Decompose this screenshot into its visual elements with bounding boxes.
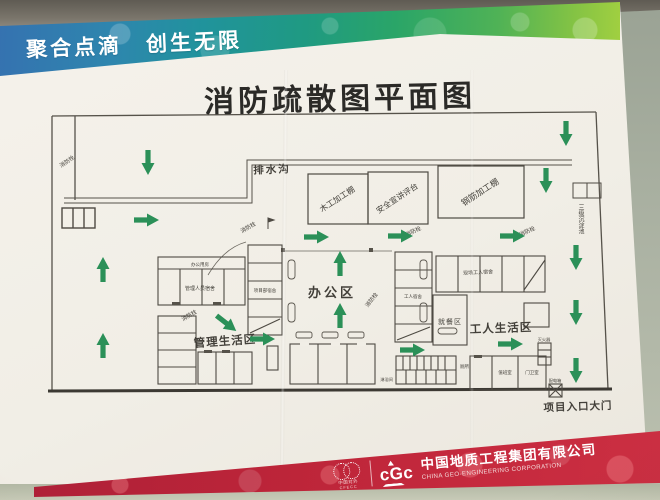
evacuation-arrow	[142, 150, 155, 175]
evacuation-arrow	[97, 257, 110, 282]
toilet-label: 厕所	[460, 363, 469, 370]
duty-room-label: 值班室	[498, 369, 512, 376]
evacuation-arrow	[304, 231, 329, 244]
substation-box	[62, 208, 95, 228]
evacuation-arrow	[400, 344, 425, 357]
evacuation-arrow	[570, 245, 583, 270]
hydrant-symbol	[268, 218, 274, 229]
door-marks	[172, 302, 482, 358]
mgmt-area-label: 管理生活区	[193, 332, 256, 350]
partner-logo-icon: 中国对外 CFECC	[331, 459, 364, 492]
hydrant-labels: 消防栓消防栓消防栓消防栓消防栓消防栓	[58, 153, 537, 323]
wood-shed-label: 木工加工棚	[318, 184, 357, 214]
evacuation-arrow	[97, 333, 110, 358]
sediment-tank	[573, 183, 601, 198]
hydrant-label: 消防栓	[363, 290, 380, 308]
evacuation-arrow	[540, 168, 553, 193]
power-box-label: 配电箱	[549, 377, 562, 384]
proj-dorm-label: 项目部宿舍	[254, 287, 277, 294]
office-area-label: 办公区	[308, 285, 356, 300]
site-plan: 排水沟 木工加工棚 安全宣讲评台 钢筋加工棚 三级沉淀池	[0, 0, 660, 500]
site-boundary	[52, 112, 608, 392]
gate-label: 项目入口大门	[543, 399, 612, 414]
evacuation-arrow	[498, 338, 523, 351]
evacuation-arrow	[570, 300, 583, 325]
extinguisher-label: 灭火器	[538, 337, 551, 343]
evacuation-arrow	[570, 358, 583, 383]
drain-label: 排水沟	[253, 162, 291, 176]
evacuation-arrow	[213, 310, 241, 336]
mgmt-band-label: 办公用房	[191, 261, 209, 268]
footer-divider	[369, 460, 372, 486]
hydrant-label: 消防栓	[239, 219, 258, 234]
evacuation-arrow	[560, 121, 573, 146]
site-worker-dorm-label: 现场工人宿舍	[463, 268, 493, 277]
sediment-label: 三级沉淀池	[577, 204, 584, 234]
evacuation-arrow	[134, 214, 159, 227]
worker-dorm-label: 工人宿舍	[404, 293, 422, 300]
shower-label: 淋浴间	[380, 376, 393, 383]
worker-area-label: 工人生活区	[469, 320, 532, 336]
hydrant-label: 消防栓	[58, 153, 77, 169]
rebar-shed-label: 钢筋加工棚	[459, 176, 500, 208]
guard-room-label: 门卫室	[525, 369, 539, 376]
evacuation-arrow	[334, 251, 347, 276]
dining-label: 就餐区	[438, 317, 462, 326]
evacuation-arrow	[334, 303, 347, 328]
inner-roads	[208, 242, 392, 275]
mgmt-dorm-label: 管理人员宿舍	[185, 285, 215, 292]
cgc-logo: cGc	[379, 459, 414, 483]
safety-stage-label: 安全宣讲评台	[374, 181, 420, 216]
ring-icon	[343, 461, 361, 479]
